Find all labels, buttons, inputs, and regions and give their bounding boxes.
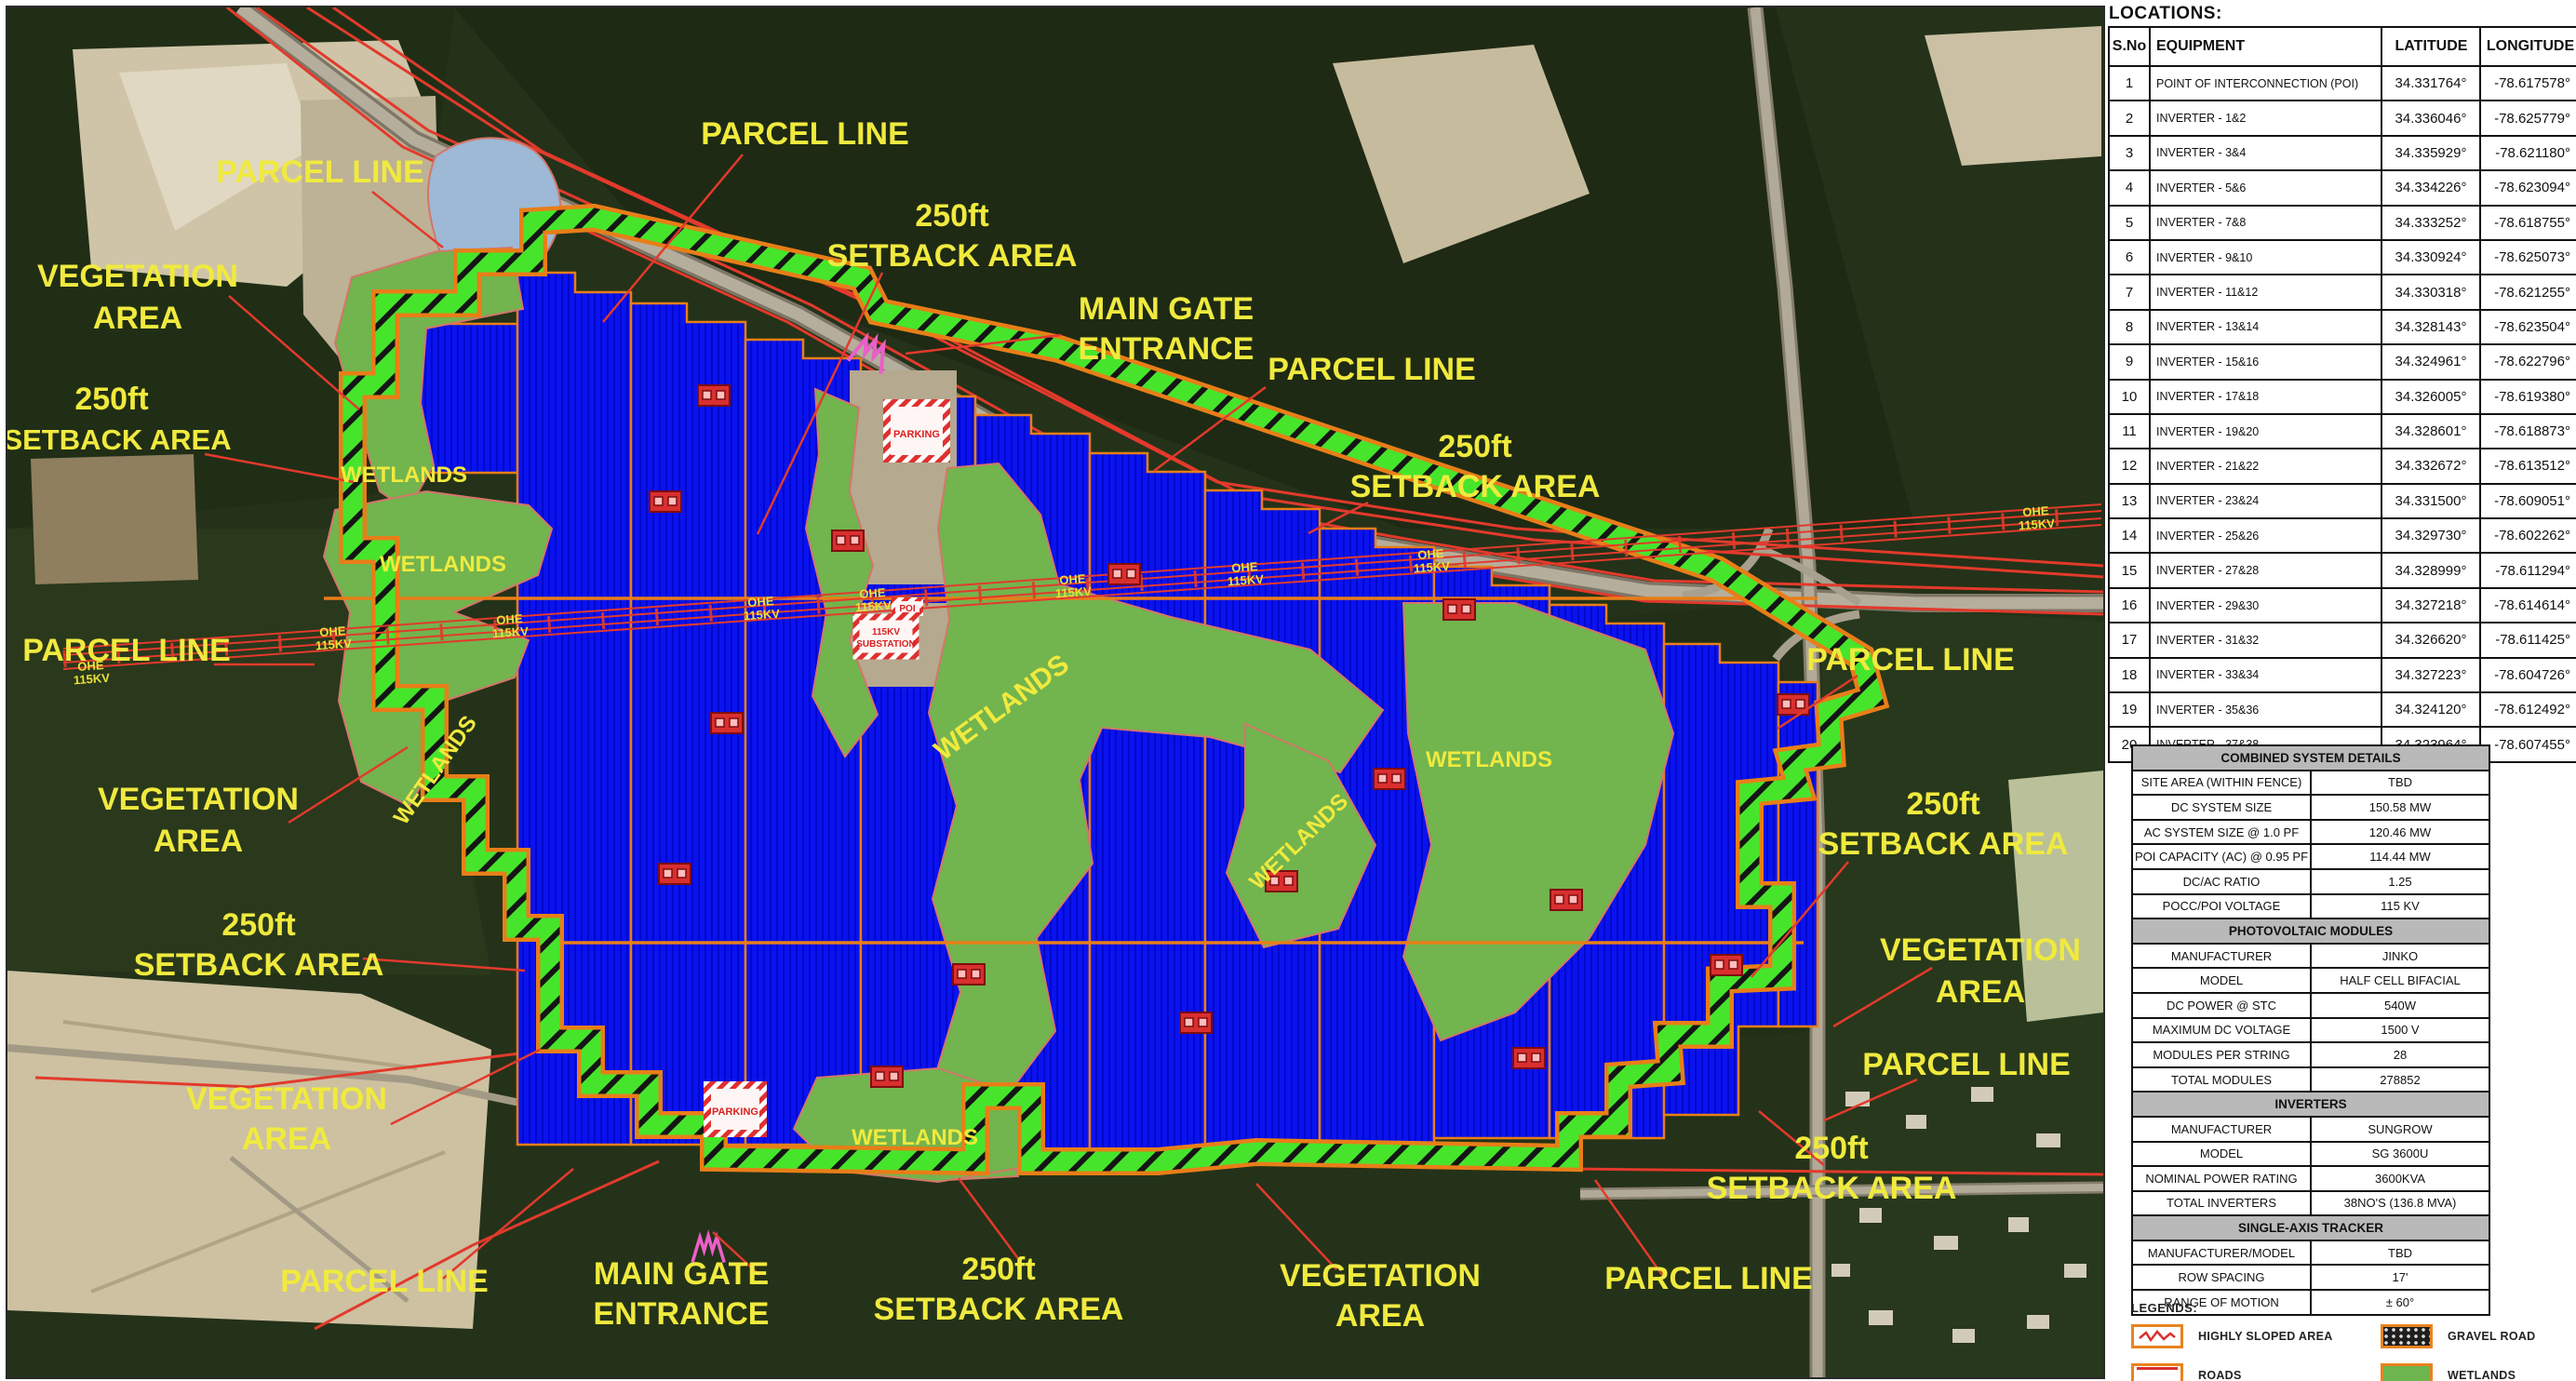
map-label-parcel-line: PARCEL LINE xyxy=(1268,352,1476,387)
spec-label: MANUFACTURER xyxy=(2132,1117,2311,1142)
cell-equipment: INVERTER - 23&24 xyxy=(2150,484,2381,518)
cell-longitude: -78.623504° xyxy=(2480,310,2576,344)
cell-sno: 4 xyxy=(2109,170,2150,205)
cell-sno: 7 xyxy=(2109,275,2150,309)
cell-latitude: 34.336046° xyxy=(2381,101,2480,135)
cell-equipment: INVERTER - 35&36 xyxy=(2150,692,2381,727)
cell-equipment: INVERTER - 13&14 xyxy=(2150,310,2381,344)
table-row: TOTAL MODULES278852 xyxy=(2132,1067,2489,1093)
map-label-setback-area: SETBACK AREA xyxy=(874,1292,1124,1327)
cell-latitude: 34.329730° xyxy=(2381,518,2480,553)
table-row: AC SYSTEM SIZE @ 1.0 PF120.46 MW xyxy=(2132,820,2489,845)
locations-title: LOCATIONS: xyxy=(2109,4,2576,24)
table-row: DC/AC RATIO1.25 xyxy=(2132,869,2489,894)
table-row: TOTAL INVERTERS38NO'S (136.8 MVA) xyxy=(2132,1191,2489,1216)
cell-equipment: INVERTER - 5&6 xyxy=(2150,170,2381,205)
cell-longitude: -78.614614° xyxy=(2480,588,2576,623)
map-label-main-gate: MAIN GATE xyxy=(1079,291,1254,327)
cell-longitude: -78.621180° xyxy=(2480,136,2576,170)
spec-label: DC/AC RATIO xyxy=(2132,869,2311,894)
cell-latitude: 34.327223° xyxy=(2381,658,2480,692)
legend-item-sloped: HIGHLY SLOPED AREA xyxy=(2131,1324,2381,1348)
section-header: INVERTERS xyxy=(2132,1092,2489,1117)
cell-sno: 11 xyxy=(2109,414,2150,449)
spec-value: 1500 V xyxy=(2311,1018,2489,1043)
cell-latitude: 34.327218° xyxy=(2381,588,2480,623)
map-label-vegetation: VEGETATION xyxy=(1280,1258,1481,1294)
spec-label: TOTAL INVERTERS xyxy=(2132,1191,2311,1216)
cell-latitude: 34.324120° xyxy=(2381,692,2480,727)
map-label-ohe-kv: 115KV xyxy=(854,598,892,615)
table-row: 13INVERTER - 23&2434.331500°-78.609051° xyxy=(2109,484,2576,518)
cell-equipment: INVERTER - 31&32 xyxy=(2150,623,2381,657)
map-label-area: AREA xyxy=(1936,974,2025,1010)
map-label-ohe-kv: 115KV xyxy=(1413,559,1450,576)
spec-label: MODEL xyxy=(2132,1142,2311,1167)
cell-sno: 5 xyxy=(2109,206,2150,240)
table-row: 6INVERTER - 9&1034.330924°-78.625073° xyxy=(2109,240,2576,275)
table-row: 14INVERTER - 25&2634.329730°-78.602262° xyxy=(2109,518,2576,553)
section-title: INVERTERS xyxy=(2132,1092,2489,1117)
table-row: 15INVERTER - 27&2834.328999°-78.611294° xyxy=(2109,553,2576,587)
table-row: DC POWER @ STC540W xyxy=(2132,993,2489,1018)
table-row: MANUFACTURERJINKO xyxy=(2132,944,2489,969)
map-label-ohe-kv: 115KV xyxy=(1054,584,1092,601)
cell-latitude: 34.328999° xyxy=(2381,553,2480,587)
cell-latitude: 34.330318° xyxy=(2381,275,2480,309)
spec-value: 38NO'S (136.8 MVA) xyxy=(2311,1191,2489,1216)
cell-longitude: -78.617578° xyxy=(2480,66,2576,101)
spec-label: ROW SPACING xyxy=(2132,1265,2311,1290)
site-plan-map: PARKING PARKING 115KV SUBSTATION POI PAR… xyxy=(6,6,2105,1379)
cell-equipment: INVERTER - 19&20 xyxy=(2150,414,2381,449)
table-row: MODELSG 3600U xyxy=(2132,1142,2489,1167)
table-row: NOMINAL POWER RATING3600KVA xyxy=(2132,1166,2489,1191)
map-label-250ft: 250ft xyxy=(961,1252,1035,1287)
cell-sno: 3 xyxy=(2109,136,2150,170)
cell-latitude: 34.326620° xyxy=(2381,623,2480,657)
map-label-area: AREA xyxy=(154,824,243,859)
section-title: COMBINED SYSTEM DETAILS xyxy=(2132,745,2489,771)
cell-longitude: -78.604726° xyxy=(2480,658,2576,692)
cell-longitude: -78.623094° xyxy=(2480,170,2576,205)
map-label-setback-area: SETBACK AREA xyxy=(1818,826,2069,862)
cell-equipment: INVERTER - 1&2 xyxy=(2150,101,2381,135)
cell-latitude: 34.335929° xyxy=(2381,136,2480,170)
spec-value: 17' xyxy=(2311,1265,2489,1290)
spec-label: SITE AREA (WITHIN FENCE) xyxy=(2132,771,2311,796)
table-row: 8INVERTER - 13&1434.328143°-78.623504° xyxy=(2109,310,2576,344)
cell-sno: 12 xyxy=(2109,449,2150,483)
spec-label: DC SYSTEM SIZE xyxy=(2132,795,2311,820)
cell-sno: 14 xyxy=(2109,518,2150,553)
cell-sno: 13 xyxy=(2109,484,2150,518)
map-label-ohe-kv: 115KV xyxy=(743,607,780,623)
table-row: MANUFACTURERSUNGROW xyxy=(2132,1117,2489,1142)
map-label-area: AREA xyxy=(242,1121,331,1157)
table-row: 12INVERTER - 21&2234.332672°-78.613512° xyxy=(2109,449,2576,483)
cell-sno: 8 xyxy=(2109,310,2150,344)
map-label-vegetation: VEGETATION xyxy=(1880,932,2081,968)
spec-value: SG 3600U xyxy=(2311,1142,2489,1167)
map-label-poi: POI xyxy=(899,604,915,614)
map-label-area: AREA xyxy=(93,301,182,336)
table-row: 5INVERTER - 7&834.333252°-78.618755° xyxy=(2109,206,2576,240)
map-label-entrance: ENTRANCE xyxy=(594,1296,770,1332)
solar-site-plan-page: PARKING PARKING 115KV SUBSTATION POI PAR… xyxy=(0,0,2576,1381)
locations-header-row: S.No EQUIPMENT LATITUDE LONGITUDE xyxy=(2109,27,2576,66)
map-label-ohe-kv: 115KV xyxy=(2018,516,2055,533)
locations-table: S.No EQUIPMENT LATITUDE LONGITUDE 1POINT… xyxy=(2108,26,2576,763)
cell-latitude: 34.326005° xyxy=(2381,380,2480,414)
map-label-setback-area: SETBACK AREA xyxy=(1707,1171,1957,1206)
cell-equipment: INVERTER - 33&34 xyxy=(2150,658,2381,692)
cell-equipment: INVERTER - 9&10 xyxy=(2150,240,2381,275)
spec-value: 115 KV xyxy=(2311,894,2489,919)
legend-row: HIGHLY SLOPED AREA GRAVEL ROAD xyxy=(2131,1324,2569,1348)
cell-longitude: -78.625779° xyxy=(2480,101,2576,135)
map-label-parcel-line: PARCEL LINE xyxy=(701,116,909,152)
cell-longitude: -78.622796° xyxy=(2480,344,2576,379)
map-label-parcel-line: PARCEL LINE xyxy=(1806,642,2015,677)
cell-equipment: INVERTER - 7&8 xyxy=(2150,206,2381,240)
spec-value: HALF CELL BIFACIAL xyxy=(2311,968,2489,993)
table-row: MANUFACTURER/MODELTBD xyxy=(2132,1240,2489,1266)
table-row: 17INVERTER - 31&3234.326620°-78.611425° xyxy=(2109,623,2576,657)
system-details-table: COMBINED SYSTEM DETAILS SITE AREA (WITHI… xyxy=(2131,744,2490,1316)
table-row: 18INVERTER - 33&3434.327223°-78.604726° xyxy=(2109,658,2576,692)
section-title: PHOTOVOLTAIC MODULES xyxy=(2132,918,2489,944)
cell-longitude: -78.607455° xyxy=(2480,727,2576,761)
map-label-wetlands: WETLANDS xyxy=(380,552,506,577)
map-label-vegetation: VEGETATION xyxy=(186,1081,387,1117)
cell-longitude: -78.612492° xyxy=(2480,692,2576,727)
spec-value: JINKO xyxy=(2311,944,2489,969)
map-label-setback-area: SETBACK AREA xyxy=(7,423,232,456)
header-equipment: EQUIPMENT xyxy=(2150,27,2381,66)
cell-sno: 15 xyxy=(2109,553,2150,587)
table-row: POCC/POI VOLTAGE115 KV xyxy=(2132,894,2489,919)
cell-equipment: INVERTER - 15&16 xyxy=(2150,344,2381,379)
legends-title: LEGENDS: xyxy=(2131,1301,2569,1315)
table-row: 9INVERTER - 15&1634.324961°-78.622796° xyxy=(2109,344,2576,379)
cell-sno: 17 xyxy=(2109,623,2150,657)
map-label-parcel-line: PARCEL LINE xyxy=(216,154,424,190)
gravel-road-swatch-icon xyxy=(2381,1324,2433,1348)
table-row: MODULES PER STRING28 xyxy=(2132,1042,2489,1067)
map-label-250ft: 250ft xyxy=(1438,429,1511,464)
map-label-substation-kv: 115KV xyxy=(872,627,900,637)
spec-label: TOTAL MODULES xyxy=(2132,1067,2311,1093)
spec-value: 120.46 MW xyxy=(2311,820,2489,845)
header-latitude: LATITUDE xyxy=(2381,27,2480,66)
spec-value: TBD xyxy=(2311,771,2489,796)
cell-longitude: -78.613512° xyxy=(2480,449,2576,483)
spec-label: POI CAPACITY (AC) @ 0.95 PF xyxy=(2132,844,2311,869)
cell-latitude: 34.324961° xyxy=(2381,344,2480,379)
spec-label: MANUFACTURER/MODEL xyxy=(2132,1240,2311,1266)
legend-label: HIGHLY SLOPED AREA xyxy=(2198,1330,2333,1343)
cell-equipment: INVERTER - 29&30 xyxy=(2150,588,2381,623)
cell-equipment: INVERTER - 27&28 xyxy=(2150,553,2381,587)
cell-equipment: POINT OF INTERCONNECTION (POI) xyxy=(2150,66,2381,101)
cell-sno: 19 xyxy=(2109,692,2150,727)
table-row: DC SYSTEM SIZE150.58 MW xyxy=(2132,795,2489,820)
cell-longitude: -78.609051° xyxy=(2480,484,2576,518)
section-header: SINGLE-AXIS TRACKER xyxy=(2132,1215,2489,1240)
map-label-parcel-line: PARCEL LINE xyxy=(1604,1261,1813,1296)
map-label-wetlands: WETLANDS xyxy=(852,1125,978,1150)
map-label-parcel-line: PARCEL LINE xyxy=(1862,1047,2071,1082)
cell-sno: 1 xyxy=(2109,66,2150,101)
table-row: 4INVERTER - 5&634.334226°-78.623094° xyxy=(2109,170,2576,205)
cell-latitude: 34.334226° xyxy=(2381,170,2480,205)
header-longitude: LONGITUDE xyxy=(2480,27,2576,66)
table-row: 1POINT OF INTERCONNECTION (POI)34.331764… xyxy=(2109,66,2576,101)
cell-longitude: -78.618755° xyxy=(2480,206,2576,240)
cell-sno: 9 xyxy=(2109,344,2150,379)
map-label-250ft: 250ft xyxy=(1794,1131,1868,1166)
spec-label: NOMINAL POWER RATING xyxy=(2132,1166,2311,1191)
map-label-ohe-kv: 115KV xyxy=(491,624,529,641)
legend-row: ROADS WETLANDS xyxy=(2131,1363,2569,1381)
table-row: 3INVERTER - 3&434.335929°-78.621180° xyxy=(2109,136,2576,170)
map-label-parking: PARKING xyxy=(893,429,940,440)
map-label-250ft: 250ft xyxy=(1906,786,1979,822)
cell-equipment: INVERTER - 3&4 xyxy=(2150,136,2381,170)
info-panel: LOCATIONS: S.No EQUIPMENT LATITUDE LONGI… xyxy=(2105,0,2576,1381)
map-label-main-gate: MAIN GATE xyxy=(594,1256,769,1292)
table-row: POI CAPACITY (AC) @ 0.95 PF114.44 MW xyxy=(2132,844,2489,869)
wetlands-swatch-icon xyxy=(2381,1363,2433,1381)
cell-latitude: 34.328601° xyxy=(2381,414,2480,449)
spec-value: 540W xyxy=(2311,993,2489,1018)
map-label-ohe-kv: 115KV xyxy=(315,637,352,653)
table-row: 16INVERTER - 29&3034.327218°-78.614614° xyxy=(2109,588,2576,623)
map-label-parcel-line: PARCEL LINE xyxy=(22,633,231,668)
cell-equipment: INVERTER - 17&18 xyxy=(2150,380,2381,414)
cell-equipment: INVERTER - 11&12 xyxy=(2150,275,2381,309)
map-label-parcel-line: PARCEL LINE xyxy=(280,1264,489,1299)
spec-value: 28 xyxy=(2311,1042,2489,1067)
map-label-250ft: 250ft xyxy=(221,907,295,943)
spec-value: TBD xyxy=(2311,1240,2489,1266)
table-row: 2INVERTER - 1&234.336046°-78.625779° xyxy=(2109,101,2576,135)
spec-value: 150.58 MW xyxy=(2311,795,2489,820)
cell-latitude: 34.332672° xyxy=(2381,449,2480,483)
legend-label: ROADS xyxy=(2198,1369,2242,1381)
cell-latitude: 34.330924° xyxy=(2381,240,2480,275)
section-title: SINGLE-AXIS TRACKER xyxy=(2132,1215,2489,1240)
table-row: SITE AREA (WITHIN FENCE)TBD xyxy=(2132,771,2489,796)
cell-sno: 18 xyxy=(2109,658,2150,692)
spec-label: MODEL xyxy=(2132,968,2311,993)
spec-label: DC POWER @ STC xyxy=(2132,993,2311,1018)
spec-label: POCC/POI VOLTAGE xyxy=(2132,894,2311,919)
spec-value: SUNGROW xyxy=(2311,1117,2489,1142)
map-label-setback-area: SETBACK AREA xyxy=(1350,469,1601,504)
cell-latitude: 34.331764° xyxy=(2381,66,2480,101)
map-label-setback-area: SETBACK AREA xyxy=(134,947,384,983)
spec-value: 114.44 MW xyxy=(2311,844,2489,869)
legends-block: LEGENDS: HIGHLY SLOPED AREA GRAVEL ROAD … xyxy=(2131,1301,2569,1381)
map-label-substation: SUBSTATION xyxy=(856,639,916,650)
map-label-area: AREA xyxy=(1335,1298,1425,1334)
roads-swatch-icon xyxy=(2131,1363,2183,1381)
spec-value: 1.25 xyxy=(2311,869,2489,894)
table-row: MAXIMUM DC VOLTAGE1500 V xyxy=(2132,1018,2489,1043)
table-row: MODELHALF CELL BIFACIAL xyxy=(2132,968,2489,993)
map-label-ohe-kv: 115KV xyxy=(73,671,110,688)
map-label-wetlands: WETLANDS xyxy=(341,463,467,488)
cell-equipment: INVERTER - 21&22 xyxy=(2150,449,2381,483)
spec-label: AC SYSTEM SIZE @ 1.0 PF xyxy=(2132,820,2311,845)
table-row: 10INVERTER - 17&1834.326005°-78.619380° xyxy=(2109,380,2576,414)
table-row: 19INVERTER - 35&3634.324120°-78.612492° xyxy=(2109,692,2576,727)
section-header: PHOTOVOLTAIC MODULES xyxy=(2132,918,2489,944)
map-label-vegetation: VEGETATION xyxy=(98,782,299,817)
map-label-vegetation: VEGETATION xyxy=(37,259,238,294)
legend-item-wetlands: WETLANDS xyxy=(2381,1363,2567,1381)
highly-sloped-area-swatch-icon xyxy=(2131,1324,2183,1348)
legend-item-roads: ROADS xyxy=(2131,1363,2381,1381)
section-header: COMBINED SYSTEM DETAILS xyxy=(2132,745,2489,771)
cell-longitude: -78.611425° xyxy=(2480,623,2576,657)
cell-sno: 16 xyxy=(2109,588,2150,623)
cell-longitude: -78.618873° xyxy=(2480,414,2576,449)
cell-longitude: -78.602262° xyxy=(2480,518,2576,553)
cell-latitude: 34.333252° xyxy=(2381,206,2480,240)
cell-longitude: -78.619380° xyxy=(2480,380,2576,414)
legend-item-gravel: GRAVEL ROAD xyxy=(2381,1324,2567,1348)
table-row: 11INVERTER - 19&2034.328601°-78.618873° xyxy=(2109,414,2576,449)
map-label-setback-area: SETBACK AREA xyxy=(827,238,1078,274)
spec-label: MODULES PER STRING xyxy=(2132,1042,2311,1067)
spec-value: 278852 xyxy=(2311,1067,2489,1093)
map-label-parking: PARKING xyxy=(712,1106,758,1118)
cell-sno: 2 xyxy=(2109,101,2150,135)
cell-latitude: 34.328143° xyxy=(2381,310,2480,344)
cell-sno: 10 xyxy=(2109,380,2150,414)
spec-label: MAXIMUM DC VOLTAGE xyxy=(2132,1018,2311,1043)
header-sno: S.No xyxy=(2109,27,2150,66)
map-label-250ft: 250ft xyxy=(915,198,988,234)
legend-label: GRAVEL ROAD xyxy=(2448,1330,2536,1343)
spec-label: MANUFACTURER xyxy=(2132,944,2311,969)
map-label-ohe-kv: 115KV xyxy=(1227,572,1264,589)
site-map-svg: PARKING PARKING 115KV SUBSTATION POI PAR… xyxy=(7,7,2103,1377)
cell-longitude: -78.611294° xyxy=(2480,553,2576,587)
cell-longitude: -78.621255° xyxy=(2480,275,2576,309)
map-label-entrance: ENTRANCE xyxy=(1079,331,1254,367)
table-row: 7INVERTER - 11&1234.330318°-78.621255° xyxy=(2109,275,2576,309)
map-label-wetlands: WETLANDS xyxy=(1426,747,1552,772)
cell-sno: 6 xyxy=(2109,240,2150,275)
cell-longitude: -78.625073° xyxy=(2480,240,2576,275)
table-row: ROW SPACING17' xyxy=(2132,1265,2489,1290)
cell-equipment: INVERTER - 25&26 xyxy=(2150,518,2381,553)
spec-value: 3600KVA xyxy=(2311,1166,2489,1191)
map-label-250ft: 250ft xyxy=(74,382,148,417)
legend-label: WETLANDS xyxy=(2448,1369,2516,1381)
cell-latitude: 34.331500° xyxy=(2381,484,2480,518)
